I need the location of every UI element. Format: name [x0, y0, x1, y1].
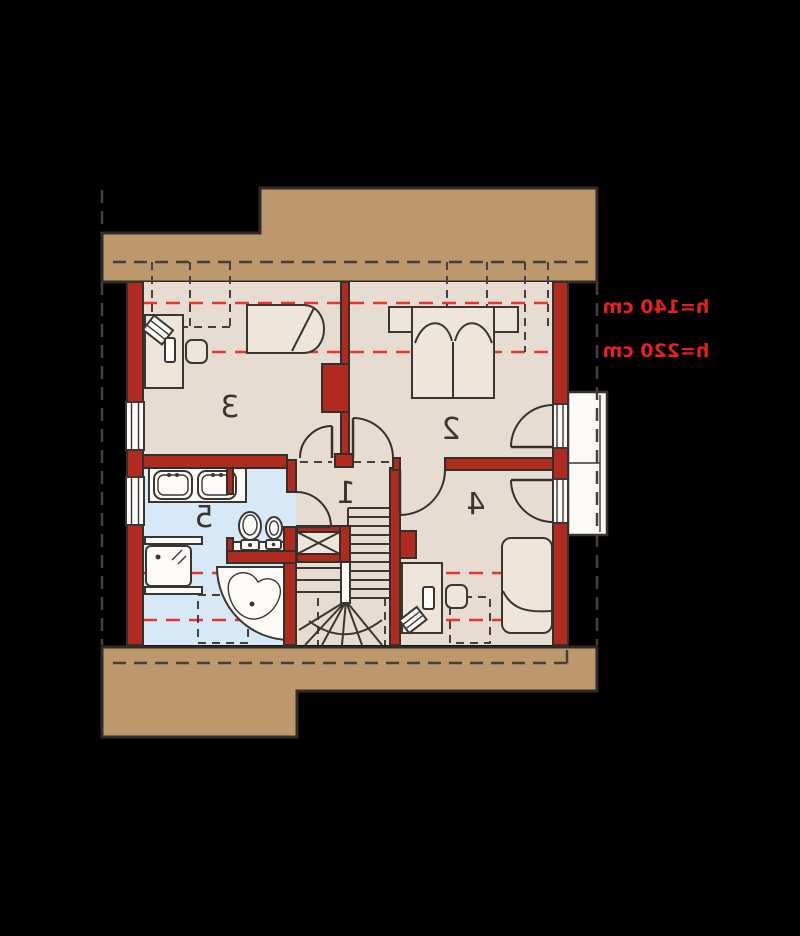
svg-text:3: 3 — [220, 390, 239, 425]
svg-text:1: 1 — [336, 476, 355, 511]
bidet-icon — [266, 517, 282, 549]
stairwell-void — [297, 532, 340, 554]
window — [126, 477, 144, 525]
chair-icon — [186, 340, 207, 363]
floor-plan-page: 3 2 1 4 5 h=140 cm h=220 cm — [0, 0, 800, 936]
svg-text:h=220 cm: h=220 cm — [603, 340, 710, 362]
balcony-door-opening — [553, 404, 568, 448]
height-label-220: h=220 cm — [603, 340, 710, 362]
chimney — [322, 364, 349, 412]
room-1-label: 1 — [336, 476, 355, 511]
bed-icon — [502, 538, 552, 633]
left-exterior-wall — [127, 282, 143, 645]
height-label-140: h=140 cm — [603, 296, 710, 318]
floor-plan-drawing: 3 2 1 4 5 h=140 cm h=220 cm — [0, 0, 800, 936]
stairwell-wall — [390, 468, 400, 645]
svg-text:5: 5 — [194, 500, 213, 535]
room-3-label: 3 — [220, 390, 239, 425]
room-5-label: 5 — [194, 500, 213, 535]
chair-icon — [446, 585, 467, 608]
balcony — [568, 392, 607, 535]
room-4-label: 4 — [466, 487, 485, 522]
monitor-icon — [165, 338, 175, 362]
stair-stringer — [341, 562, 350, 603]
monitor-icon — [423, 587, 434, 609]
toilet-icon — [239, 512, 261, 550]
balcony-door-opening — [553, 479, 568, 523]
svg-text:h=140 cm: h=140 cm — [603, 296, 710, 318]
svg-text:2: 2 — [441, 412, 460, 447]
window — [126, 402, 144, 450]
bathroom-top-wall — [143, 455, 287, 468]
room-2-label: 2 — [441, 412, 460, 447]
room2-room4-wall — [393, 458, 400, 470]
nightstand-icon — [389, 307, 412, 332]
svg-text:4: 4 — [466, 487, 485, 522]
toilet-half-wall — [227, 551, 296, 563]
nightstand-icon — [494, 307, 518, 332]
bed-icon — [247, 305, 324, 353]
double-bed-icon — [412, 307, 494, 398]
